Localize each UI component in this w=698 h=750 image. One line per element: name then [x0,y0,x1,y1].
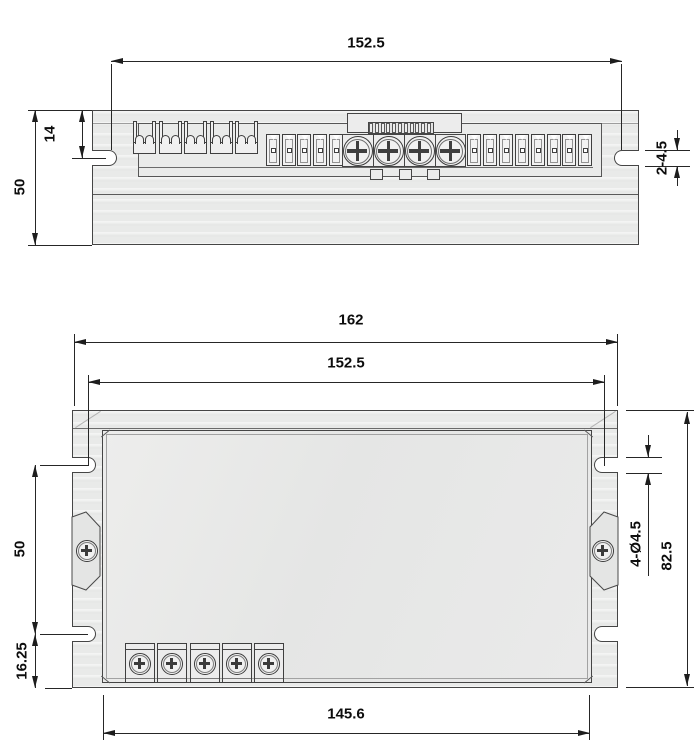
phillips-screw-icon [436,136,466,166]
pin-contact [313,134,327,166]
screw-cross [418,141,422,161]
dip-actuator-icon [427,123,431,133]
front-view: 162 152.5 50 16.25 [0,300,698,750]
pin-hole-icon [552,148,557,153]
pin-hole-icon [520,148,525,153]
right-pin-header [467,134,595,166]
dim-label: 4-Ø4.5 [628,521,645,567]
top-view: 152.5 14 50 2-4.5 [0,0,698,300]
dim-label: 82.5 [659,541,676,570]
foot-tab [427,169,440,180]
dim-label: 152.5 [347,35,385,52]
pin-hole-icon [567,148,572,153]
cage-terminal [210,121,234,155]
dip-actuator-icon [415,123,419,133]
pin-hole-icon [583,148,588,153]
screw-cross [267,658,270,669]
pin-hole-icon [318,148,323,153]
terminal-bottom-line [223,678,251,679]
terminal-bottom-line [255,678,283,679]
dip-actuator-icon [392,123,396,133]
dip-actuator-icon [398,123,402,133]
cage-terminal-row [133,121,263,155]
terminal-clamp-icon [145,135,154,144]
phillips-screw-icon [194,653,216,675]
terminal-bottom-line [158,678,186,679]
screw-cross [449,141,453,161]
pin-contact [515,134,529,166]
pin-contact [578,134,592,166]
pin-hole-icon [472,148,477,153]
phillips-screw-icon [374,136,404,166]
pin-hole-icon [334,148,339,153]
mount-slot-top-right [594,457,618,473]
terminal-block [157,643,187,683]
terminal-bottom-line [126,678,154,679]
dim-label: 152.5 [327,355,365,372]
cage-terminal [133,121,157,155]
dip-actuator-icon [404,123,408,133]
dim-label: 50 [12,541,29,558]
cage-terminal [184,121,208,155]
screw-cross [203,658,206,669]
pin-contact [282,134,296,166]
phillips-screw-icon [405,136,435,166]
foot-tab [399,169,412,180]
terminal-clamp-icon [171,135,180,144]
screw-cross [601,545,604,556]
screw-cross [138,658,141,669]
pin-hole-icon [488,148,493,153]
dim-label: 50 [12,179,29,196]
top-view-recess-shelf-line [139,167,593,168]
dim-label: 2-4.5 [654,141,671,175]
terminal-block [190,643,220,683]
pin-hole-icon [536,148,541,153]
terminal-block [222,643,252,683]
screw-cross [235,658,238,669]
pin-contact [547,134,561,166]
dim-label: 145.6 [327,706,365,723]
dip-switch-actuators [369,123,435,133]
cage-terminal [235,121,259,155]
dip-actuator-icon [386,123,390,133]
top-view-step-line [93,194,638,195]
pin-hole-icon [287,148,292,153]
terminal-top-line [191,649,219,650]
pin-contact [467,134,481,166]
pin-contact [531,134,545,166]
front-terminal-row [125,643,290,683]
phillips-screw-icon [129,653,151,675]
dim-label: 162 [338,312,363,329]
pin-contact [483,134,497,166]
terminal-clamp-icon [161,135,170,144]
phillips-screw-icon [76,540,98,562]
terminal-top-line [255,649,283,650]
pin-hole-icon [271,148,276,153]
cage-terminal [159,121,183,155]
pin-contact [562,134,576,166]
screw-cross [387,141,391,161]
pin-contact [499,134,513,166]
dim-label: 14 [42,126,59,143]
mounting-feet-row [370,169,450,180]
dip-actuator-icon [381,123,385,133]
mount-slot-right [614,150,639,166]
terminal-block [254,643,284,683]
phillips-screw-icon [161,653,183,675]
terminal-clamp-icon [212,135,221,144]
pin-contact [266,134,280,166]
pin-contact [297,134,311,166]
dip-actuator-icon [375,123,379,133]
screw-cross [356,141,360,161]
terminal-top-line [126,649,154,650]
phillips-screw-icon [258,653,280,675]
phillips-screw-icon [592,540,614,562]
dimension-drawing: 152.5 14 50 2-4.5 [0,0,698,750]
terminal-top-line [158,649,186,650]
terminal-clamp-icon [135,135,144,144]
screw-cross [170,658,173,669]
dim-label: 16.25 [14,642,31,680]
terminal-bottom-line [191,678,219,679]
phillips-screw-icon [226,653,248,675]
terminal-clamp-icon [237,135,246,144]
dip-actuator-icon [369,123,373,133]
dip-actuator-icon [410,123,414,133]
left-pin-header [266,134,346,166]
front-flange-line [73,428,617,429]
pin-hole-icon [302,148,307,153]
foot-tab [370,169,383,180]
pin-contact [329,134,343,166]
terminal-top-line [223,649,251,650]
screw-row [343,136,467,166]
pin-hole-icon [504,148,509,153]
dip-actuator-icon [421,123,425,133]
terminal-clamp-icon [222,135,231,144]
mount-slot-bottom-right [594,626,618,642]
terminal-block [125,643,155,683]
terminal-clamp-icon [247,135,256,144]
terminal-clamp-icon [186,135,195,144]
terminal-clamp-icon [196,135,205,144]
phillips-screw-icon [343,136,373,166]
screw-cross [85,545,88,556]
